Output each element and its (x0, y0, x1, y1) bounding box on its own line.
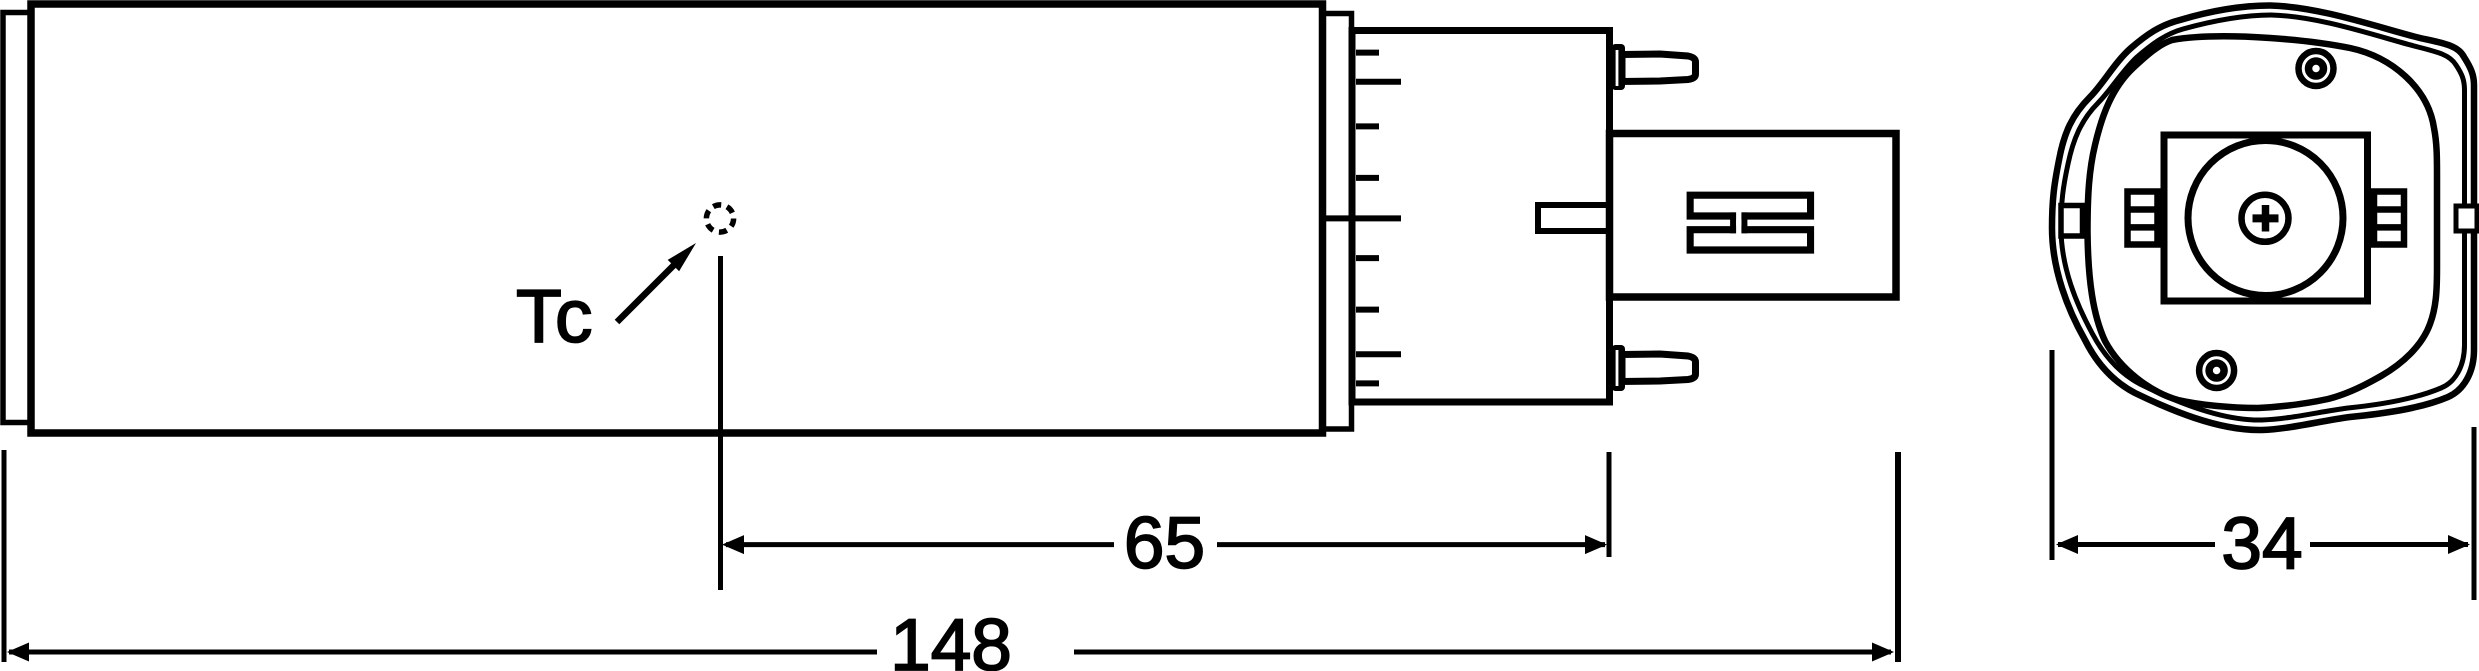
svg-text:Tc: Tc (516, 274, 594, 358)
svg-text:65: 65 (1124, 503, 1205, 584)
svg-text:148: 148 (890, 605, 1012, 671)
svg-text:34: 34 (2221, 504, 2302, 585)
